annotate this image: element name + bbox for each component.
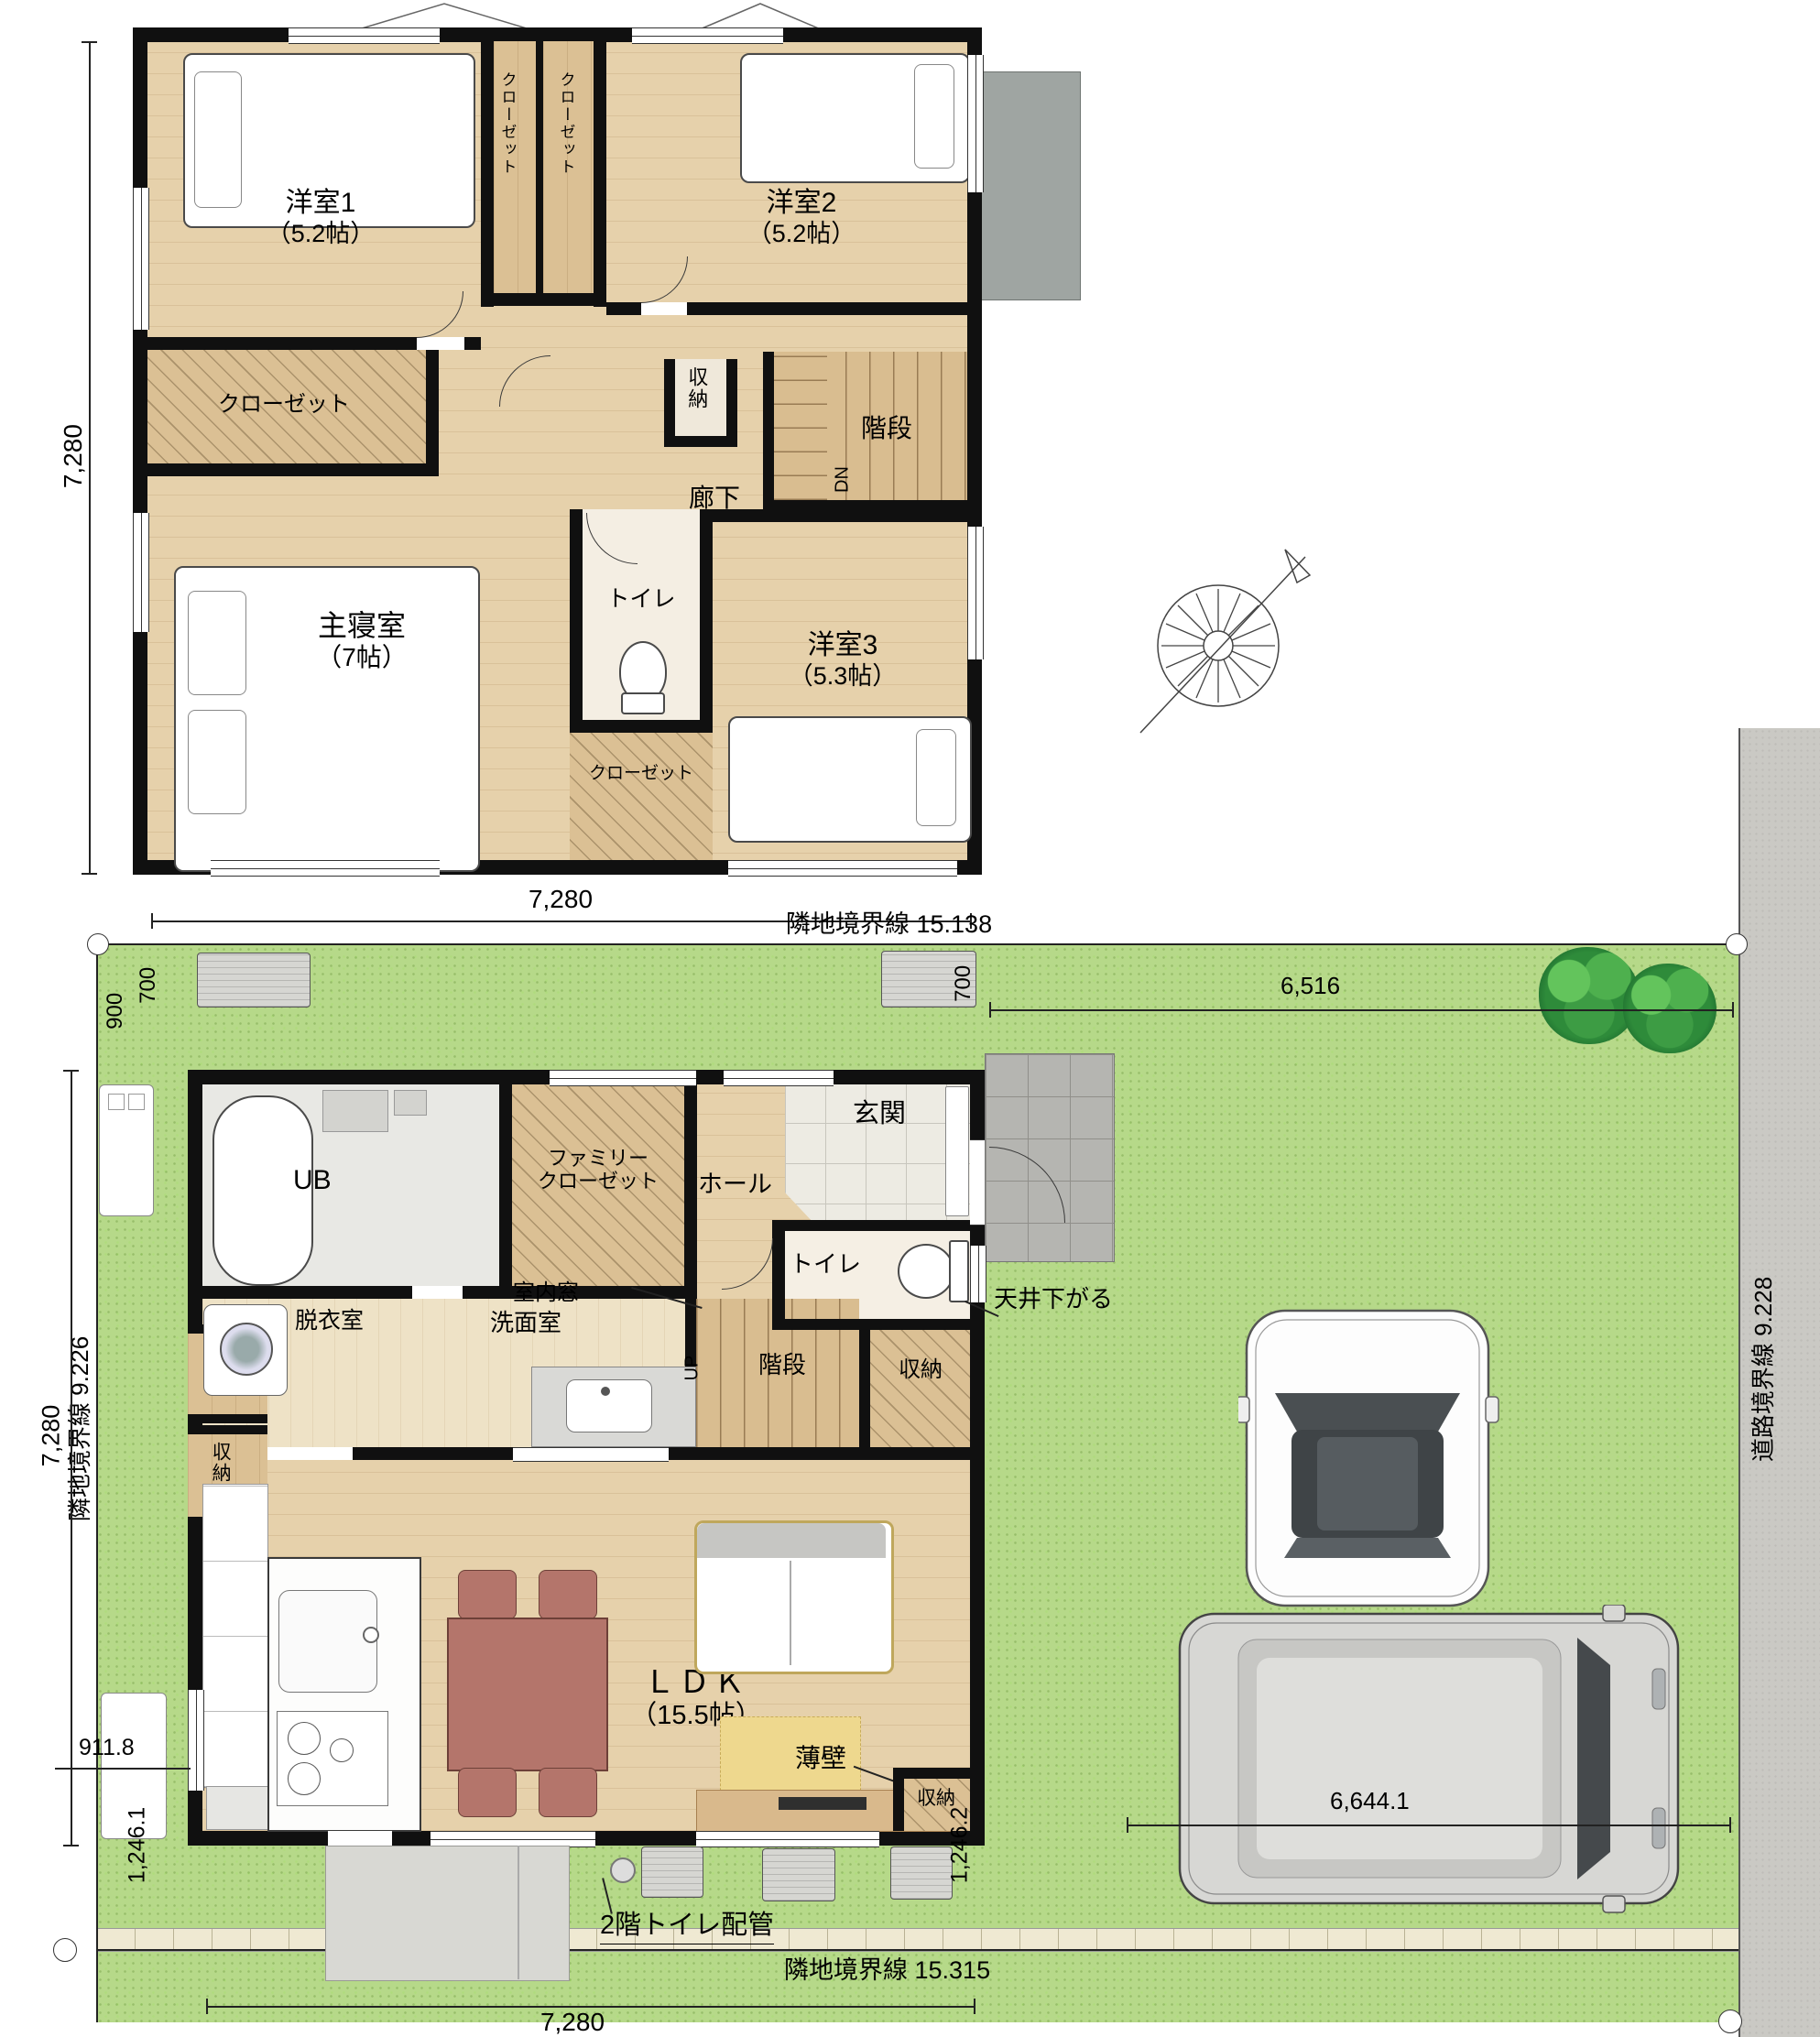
bath-counter [322,1090,388,1132]
car-suv-icon [1238,1305,1504,1617]
dim-label-6516: 6,516 [1281,973,1340,1000]
burner-icon [288,1722,321,1755]
wall [713,509,967,522]
room-name: 洋室2 [678,188,925,220]
window [133,188,149,330]
room-label-yoshitsu1: 洋室1 （5.2帖） [197,188,444,248]
room-name-line2: クローゼット [512,1170,684,1193]
door-opening [412,1286,463,1299]
stairs-label: 階段 [758,1352,806,1379]
burner-icon [330,1738,354,1762]
stairs-label: 階段 [861,414,912,443]
ac-unit-icon [197,953,311,1008]
wall [726,359,737,447]
ceiling-drop-label: 天井下がる [994,1286,1113,1313]
dining-chair-icon [458,1570,517,1619]
ac-unit-icon [762,1848,835,1901]
wall [664,359,675,447]
room-name: 主寝室 [243,609,481,643]
dim-tick [1729,1817,1731,1833]
ac-unit-icon [890,1846,953,1900]
wall [133,27,982,42]
closet-label: クローゼット [498,71,517,282]
dim-tick [151,913,153,929]
wall [481,293,606,306]
door-opening [266,1447,353,1460]
wall [499,1070,512,1295]
dim-line [71,1070,72,1846]
dim-line [55,1768,191,1770]
dim-tick [1127,1817,1128,1833]
entrance-door-opening [970,1139,985,1225]
wall [536,41,543,294]
closet-label: クローゼット [165,392,403,418]
boundary-label-top: 隣地境界線 15.138 [786,910,992,939]
room-name: 洋室1 [197,188,444,220]
door-opening [641,302,687,315]
closet-label: クローゼット [557,71,575,282]
room-label-senmen: 洗面室 [490,1310,561,1337]
dim-label-2f-bottom: 7,280 [492,885,629,914]
wall [147,463,439,476]
pillow-icon [916,729,956,826]
toilet-label: トイレ [790,1251,861,1279]
indoor-window-label: 室内窓 [513,1280,579,1306]
dining-chair-icon [539,1768,597,1817]
north-compass-icon [1127,540,1319,746]
window [632,27,783,44]
kitchen-sink-icon [278,1590,377,1693]
dim-label-700: 700 [951,956,976,1011]
window [724,1070,834,1086]
storage-label: 収納 [870,1357,971,1383]
ac-unit-icon [641,1846,703,1898]
boundary-marker-icon [87,933,109,955]
window [967,527,984,659]
thin-wall-label: 薄壁 [795,1744,846,1773]
window [696,1831,879,1847]
toilet-tank-icon [949,1240,969,1302]
wall [859,1330,870,1447]
kitchen-counter-wall [202,1484,268,1788]
burner-icon [288,1762,321,1795]
wall [700,509,713,733]
dim-tick [63,1845,79,1846]
window [970,1246,986,1302]
door-opening [417,337,464,350]
boundary-label-right: 道路境界線 9.228 [1750,1186,1778,1552]
room-label-yoshitsu3: 洋室3 （5.3帖） [724,630,962,691]
dim-line [989,1009,1734,1011]
door-opening [328,1831,392,1846]
up-label: UP [682,1341,703,1396]
room-label-family-closet: ファミリー クローゼット [512,1147,684,1193]
room-label-ub: UB [293,1165,332,1197]
piping-label: 2階トイレ配管 [600,1911,774,1944]
dim-line [89,41,91,875]
room-label-genkan: 玄関 [806,1099,953,1129]
dining-table-icon [447,1618,608,1771]
wall [188,1414,267,1423]
boundary-label-bottom: 隣地境界線 15.315 [784,1956,990,1985]
door-opening [513,1447,669,1462]
toilet-tank-icon [621,692,665,714]
wall [426,350,439,476]
dim-label-2f-left: 7,280 [59,392,88,520]
dim-label-6644: 6,644.1 [1330,1788,1410,1815]
dim-line [1127,1825,1731,1826]
wall [763,352,774,513]
wall [570,509,583,733]
window [967,55,984,192]
dim-label-700: 700 [136,958,161,1013]
wall [772,1220,785,1330]
boundary-marker-icon [1718,2010,1742,2033]
room-name: 洋室3 [724,630,962,662]
dim-label-7280-house: 7,280 [37,1345,65,1528]
faucet-icon [363,1627,379,1643]
dim-label-7280-bottom: 7,280 [495,2008,650,2037]
water-heater-icon [99,1084,154,1216]
wall [594,41,606,307]
room-size: （5.2帖） [197,220,444,248]
boundary-marker-icon [1726,933,1748,955]
pillow-icon [914,64,954,169]
dining-chair-icon [539,1570,597,1619]
wall [684,1070,697,1299]
pad-seam [518,1846,519,1979]
down-label: DN [833,460,854,500]
dim-label-900: 900 [103,984,128,1039]
sink-basin-icon [566,1379,652,1432]
tree-icon [1623,964,1716,1053]
meter-box-icon [108,1094,125,1110]
boundary-marker-icon [53,1938,77,1962]
boundary-line-top [96,943,1738,945]
balcony-roof [975,71,1081,300]
roof-gable-icon [696,0,824,31]
sofa-seam [790,1561,791,1665]
window [211,860,440,877]
wall [133,27,147,875]
storage-label: 収納 [209,1442,231,1484]
dim-tick [974,1999,975,2014]
room-size: （5.3帖） [724,662,962,691]
room-name-line1: ファミリー [512,1147,684,1170]
dim-tick [63,1070,79,1072]
car-van-icon [1174,1605,1687,1916]
wall [188,1425,267,1434]
pipe-fitting-icon [610,1857,636,1883]
wall [570,720,713,733]
bath-counter [394,1090,427,1116]
stairs-winder [774,352,827,500]
sofa-back-icon [697,1523,886,1558]
wall [664,436,737,447]
dim-label-1246-1: 1,246.1 [125,1753,151,1936]
window [550,1070,696,1086]
floorplan-canvas: クローゼット クローゼット クローゼット 収納 階段 DN 廊下 トイレ クロー… [0,0,1820,2037]
meter-box-icon [128,1094,145,1110]
boundary-line-left [96,945,98,2022]
room-size: （7帖） [243,643,481,672]
toilet-icon [898,1244,954,1299]
dim-tick [82,873,97,875]
pillow-icon [188,710,246,814]
dim-tick [82,41,97,43]
concrete-pad [325,1846,570,1981]
faucet-icon [601,1387,610,1396]
dim-tick [989,1002,991,1018]
pillow-icon [188,591,246,695]
window [133,513,149,632]
dim-label-1246-2: 1,246.2 [947,1753,974,1936]
window [289,27,440,44]
storage-floor-c [870,1330,970,1447]
room-label-hall: ホール [698,1171,772,1199]
closet-south-2f [570,733,713,860]
wall [772,1220,970,1231]
wall [772,1319,970,1330]
dim-tick [1732,1002,1734,1018]
room-size: （5.2帖） [678,220,925,248]
closet-label: クローゼット [570,764,713,784]
room-label-yoshitsu2: 洋室2 （5.2帖） [678,188,925,248]
storage-label: 収納 [685,366,708,410]
room-label-master: 主寝室 （7帖） [243,609,481,672]
tv-icon [779,1797,866,1810]
window [188,1690,204,1791]
toilet-label: トイレ [583,586,700,613]
dim-tick [206,1999,208,2014]
wall [481,41,494,307]
washer-drum-icon [220,1323,273,1376]
room-label-datsui: 脱衣室 [295,1308,364,1334]
dining-chair-icon [458,1768,517,1817]
window [728,860,957,877]
